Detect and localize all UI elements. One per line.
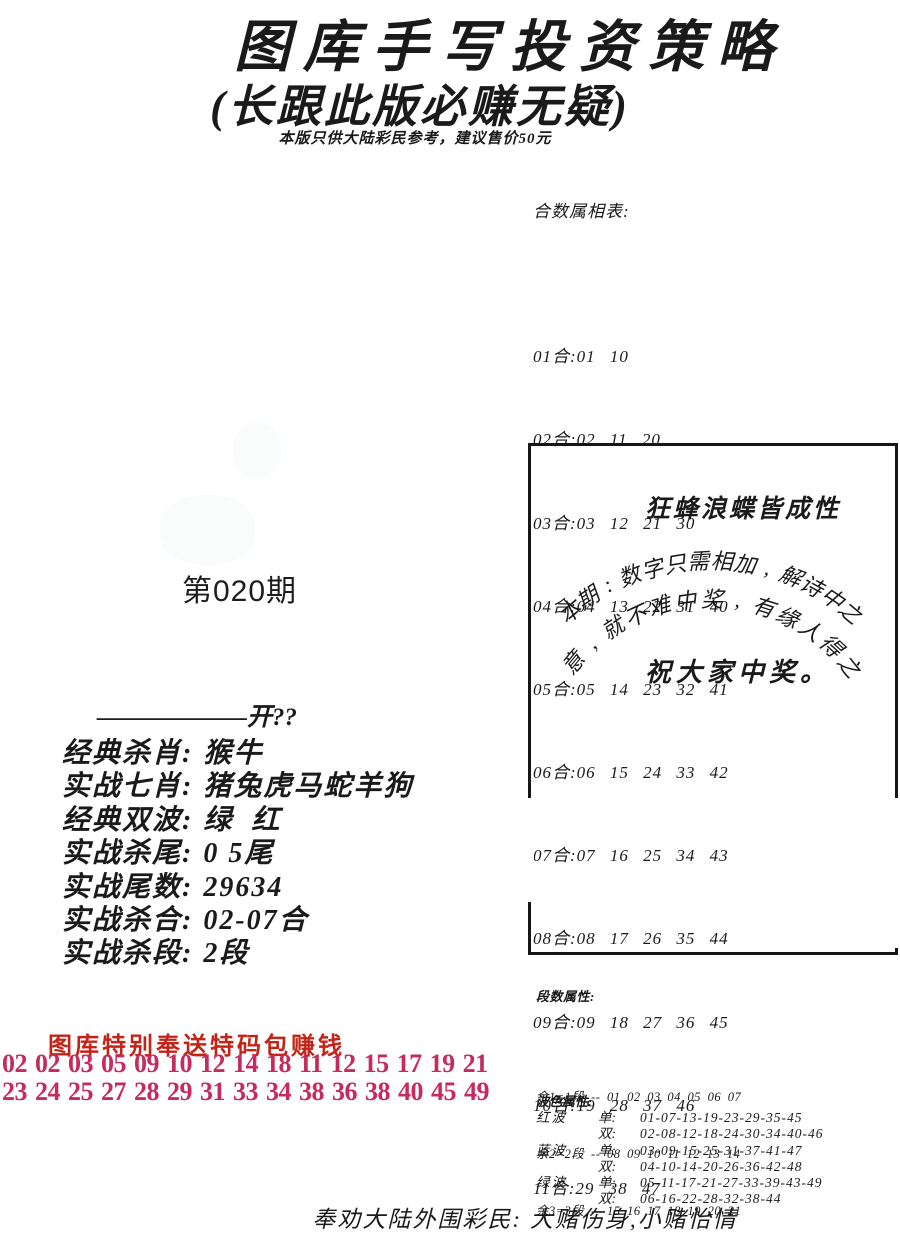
scan-artifact-blob [233, 423, 281, 477]
bose-section: 波色属性: 红波单:01-07-13-19-23-29-35-45 双:02-0… [536, 1094, 823, 1207]
prediction-row: 实战杀尾:0 5尾 [62, 831, 522, 864]
bose-numbers: 04-10-14-20-26-36-42-48 [640, 1159, 802, 1175]
bose-type-label: 单: [598, 1175, 640, 1191]
bose-section-rows: 红波单:01-07-13-19-23-29-35-45 双:02-08-12-1… [536, 1110, 823, 1207]
footer-warning: 奉劝大陆外围彩民: 大赌伤身,小赌怡情 [275, 1200, 775, 1234]
poem-arc-char: , [580, 632, 601, 655]
bose-wave-label [536, 1159, 584, 1175]
hesu-table-title: 合数属相表: [533, 202, 893, 223]
bose-numbers: 05-11-17-21-27-33-39-43-49 [640, 1175, 822, 1191]
prediction-row: 实战杀合:02-07合 [62, 898, 522, 931]
duan-section-title: 段数属性: [536, 990, 741, 1004]
bose-wave-label [536, 1126, 584, 1142]
scan-artifact-blob [160, 495, 255, 565]
prediction-row: 实战杀段:2段 [62, 931, 522, 964]
hesu-table-row: 01合:01 10 [533, 347, 893, 368]
lottery-tip-sheet: 图库手写投资策略 (长跟此版必赚无疑) 本版只供大陆彩民参考，建议售价50元 合… [0, 0, 900, 1241]
bose-numbers: 03-09-15-25-31-37-41-47 [640, 1143, 802, 1159]
prediction-row: 实战七肖:猪兔虎马蛇羊狗 [62, 764, 522, 797]
bose-numbers: 02-08-12-18-24-30-34-40-46 [640, 1126, 823, 1142]
box-border-gap-right [893, 798, 900, 948]
poem-arc-char: , [733, 587, 742, 614]
bose-wave-label: 蓝波 [536, 1143, 584, 1159]
bose-row: 蓝波单:03-09-15-25-31-37-41-47 [536, 1143, 823, 1159]
open-result-line: ——————开?? [97, 697, 297, 733]
prediction-row: 实战尾数:29634 [62, 865, 522, 898]
bose-type-label: 双: [598, 1159, 640, 1175]
bose-type-label: 单: [598, 1143, 640, 1159]
bose-wave-label: 红波 [536, 1110, 584, 1126]
prediction-row: 经典杀肖:猴牛 [62, 731, 522, 764]
bose-type-label: 单: [598, 1110, 640, 1126]
bose-row: 双:02-08-12-18-24-30-34-40-46 [536, 1126, 823, 1142]
issue-number: 第020期 [182, 566, 297, 610]
bose-numbers: 01-07-13-19-23-29-35-45 [640, 1110, 802, 1126]
price-note: 本版只供大陆彩民参考，建议售价50元 [190, 127, 640, 148]
bose-type-label: 双: [598, 1126, 640, 1142]
poem-arc-line-2: 意,就不难中奖,有缘人得之 [528, 443, 892, 949]
bose-wave-label: 绿波 [536, 1175, 584, 1191]
bose-row: 绿波单:05-11-17-21-27-33-39-43-49 [536, 1175, 823, 1191]
special-numbers-row-2: 23 24 25 27 28 29 31 33 34 38 36 38 40 4… [2, 1077, 500, 1107]
prediction-list: 经典杀肖:猴牛 实战七肖:猪兔虎马蛇羊狗 经典双波:绿 红 实战杀尾:0 5尾 … [62, 731, 522, 965]
bose-row: 双:04-10-14-20-26-36-42-48 [536, 1159, 823, 1175]
special-numbers-row-1: 02 02 03 05 09 10 12 14 18 11 12 15 17 1… [2, 1049, 500, 1079]
blessing-line: 祝大家中奖。 [633, 652, 843, 689]
page-subtitle: (长跟此版必赚无疑) [90, 70, 750, 135]
prediction-label: 实战杀段: [62, 938, 193, 969]
prediction-value: 2段 [203, 938, 249, 969]
poem-arc-char: 中 [672, 582, 698, 617]
prediction-row: 经典双波:绿 红 [62, 798, 522, 831]
bose-row: 红波单:01-07-13-19-23-29-35-45 [536, 1110, 823, 1126]
poem-arc-char: 奖 [700, 582, 722, 614]
poem-arc-char: 意 [553, 644, 592, 681]
bose-section-title: 波色属性: [536, 1094, 823, 1110]
